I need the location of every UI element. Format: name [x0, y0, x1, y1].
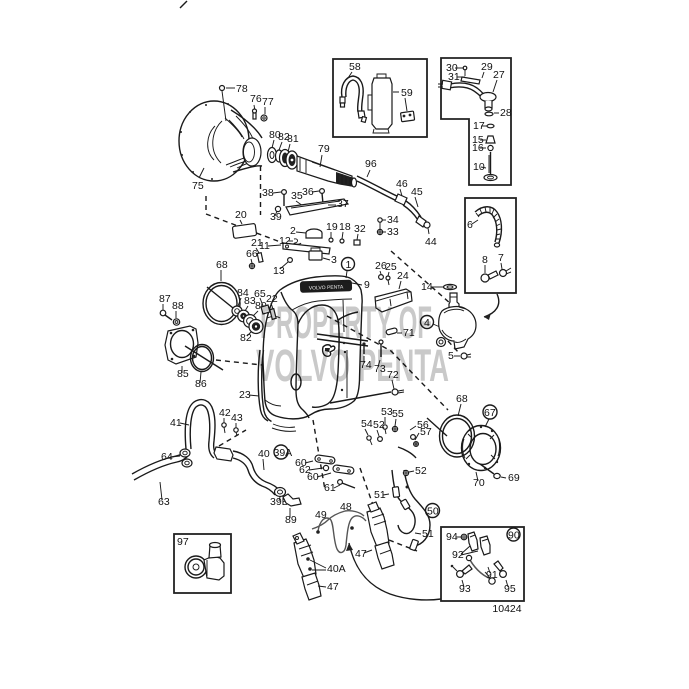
svg-text:37: 37 — [337, 198, 349, 210]
svg-text:49: 49 — [315, 509, 327, 521]
svg-text:47: 47 — [355, 548, 367, 560]
svg-text:63: 63 — [158, 496, 170, 508]
svg-text:87: 87 — [159, 293, 171, 305]
svg-text:59: 59 — [401, 87, 413, 99]
svg-text:27: 27 — [493, 69, 505, 81]
svg-text:29: 29 — [481, 61, 493, 73]
svg-text:10424: 10424 — [492, 603, 521, 615]
svg-text:28: 28 — [500, 107, 512, 119]
svg-text:78: 78 — [236, 83, 248, 95]
svg-text:76: 76 — [250, 93, 262, 105]
svg-text:8: 8 — [482, 254, 488, 266]
svg-text:68: 68 — [216, 259, 228, 271]
svg-text:42: 42 — [219, 407, 231, 419]
svg-text:1: 1 — [346, 259, 352, 271]
svg-text:32: 32 — [354, 223, 366, 235]
svg-text:90: 90 — [508, 530, 520, 542]
svg-text:VOLVO PENTA: VOLVO PENTA — [309, 284, 344, 291]
svg-text:89: 89 — [285, 514, 297, 526]
svg-text:77: 77 — [262, 96, 274, 108]
svg-text:47: 47 — [327, 581, 339, 593]
svg-text:38: 38 — [262, 187, 274, 199]
svg-text:70: 70 — [473, 477, 485, 489]
svg-text:86: 86 — [195, 378, 207, 390]
svg-text:25: 25 — [385, 261, 397, 273]
svg-text:88: 88 — [172, 300, 184, 312]
svg-text:9: 9 — [364, 279, 370, 291]
svg-text:85: 85 — [177, 368, 189, 380]
svg-text:19: 19 — [326, 221, 338, 233]
svg-text:75: 75 — [192, 180, 204, 192]
svg-text:45: 45 — [411, 186, 423, 198]
svg-text:57: 57 — [420, 426, 432, 438]
svg-text:97: 97 — [177, 536, 189, 548]
svg-text:93: 93 — [459, 583, 471, 595]
svg-text:50: 50 — [427, 506, 439, 518]
svg-text:39A: 39A — [274, 447, 293, 459]
svg-text:6: 6 — [467, 219, 473, 231]
svg-text:52: 52 — [415, 465, 427, 477]
svg-text:46: 46 — [396, 178, 408, 190]
svg-text:34: 34 — [387, 214, 399, 226]
svg-text:7: 7 — [498, 252, 504, 264]
svg-text:67: 67 — [484, 407, 496, 419]
svg-text:55: 55 — [392, 408, 404, 420]
svg-text:44: 44 — [425, 236, 437, 248]
svg-text:43: 43 — [231, 412, 243, 424]
svg-text:81: 81 — [287, 133, 299, 145]
svg-text:52: 52 — [373, 419, 385, 431]
svg-text:33: 33 — [387, 226, 399, 238]
svg-text:58: 58 — [349, 61, 361, 73]
svg-text:40: 40 — [258, 448, 270, 460]
svg-text:79: 79 — [318, 143, 330, 155]
svg-text:3: 3 — [331, 254, 337, 266]
svg-text:82: 82 — [240, 332, 252, 344]
svg-text:20: 20 — [235, 209, 247, 221]
svg-text:18: 18 — [339, 221, 351, 233]
svg-text:96: 96 — [365, 158, 377, 170]
svg-text:54: 54 — [361, 418, 373, 430]
svg-text:95: 95 — [504, 583, 516, 595]
svg-text:VOLVO PENTA: VOLVO PENTA — [256, 340, 449, 391]
svg-text:68: 68 — [456, 393, 468, 405]
svg-text:69: 69 — [508, 472, 520, 484]
svg-text:24: 24 — [397, 270, 409, 282]
svg-text:2: 2 — [290, 225, 296, 237]
svg-text:66: 66 — [246, 248, 258, 260]
svg-text:40A: 40A — [327, 563, 346, 575]
